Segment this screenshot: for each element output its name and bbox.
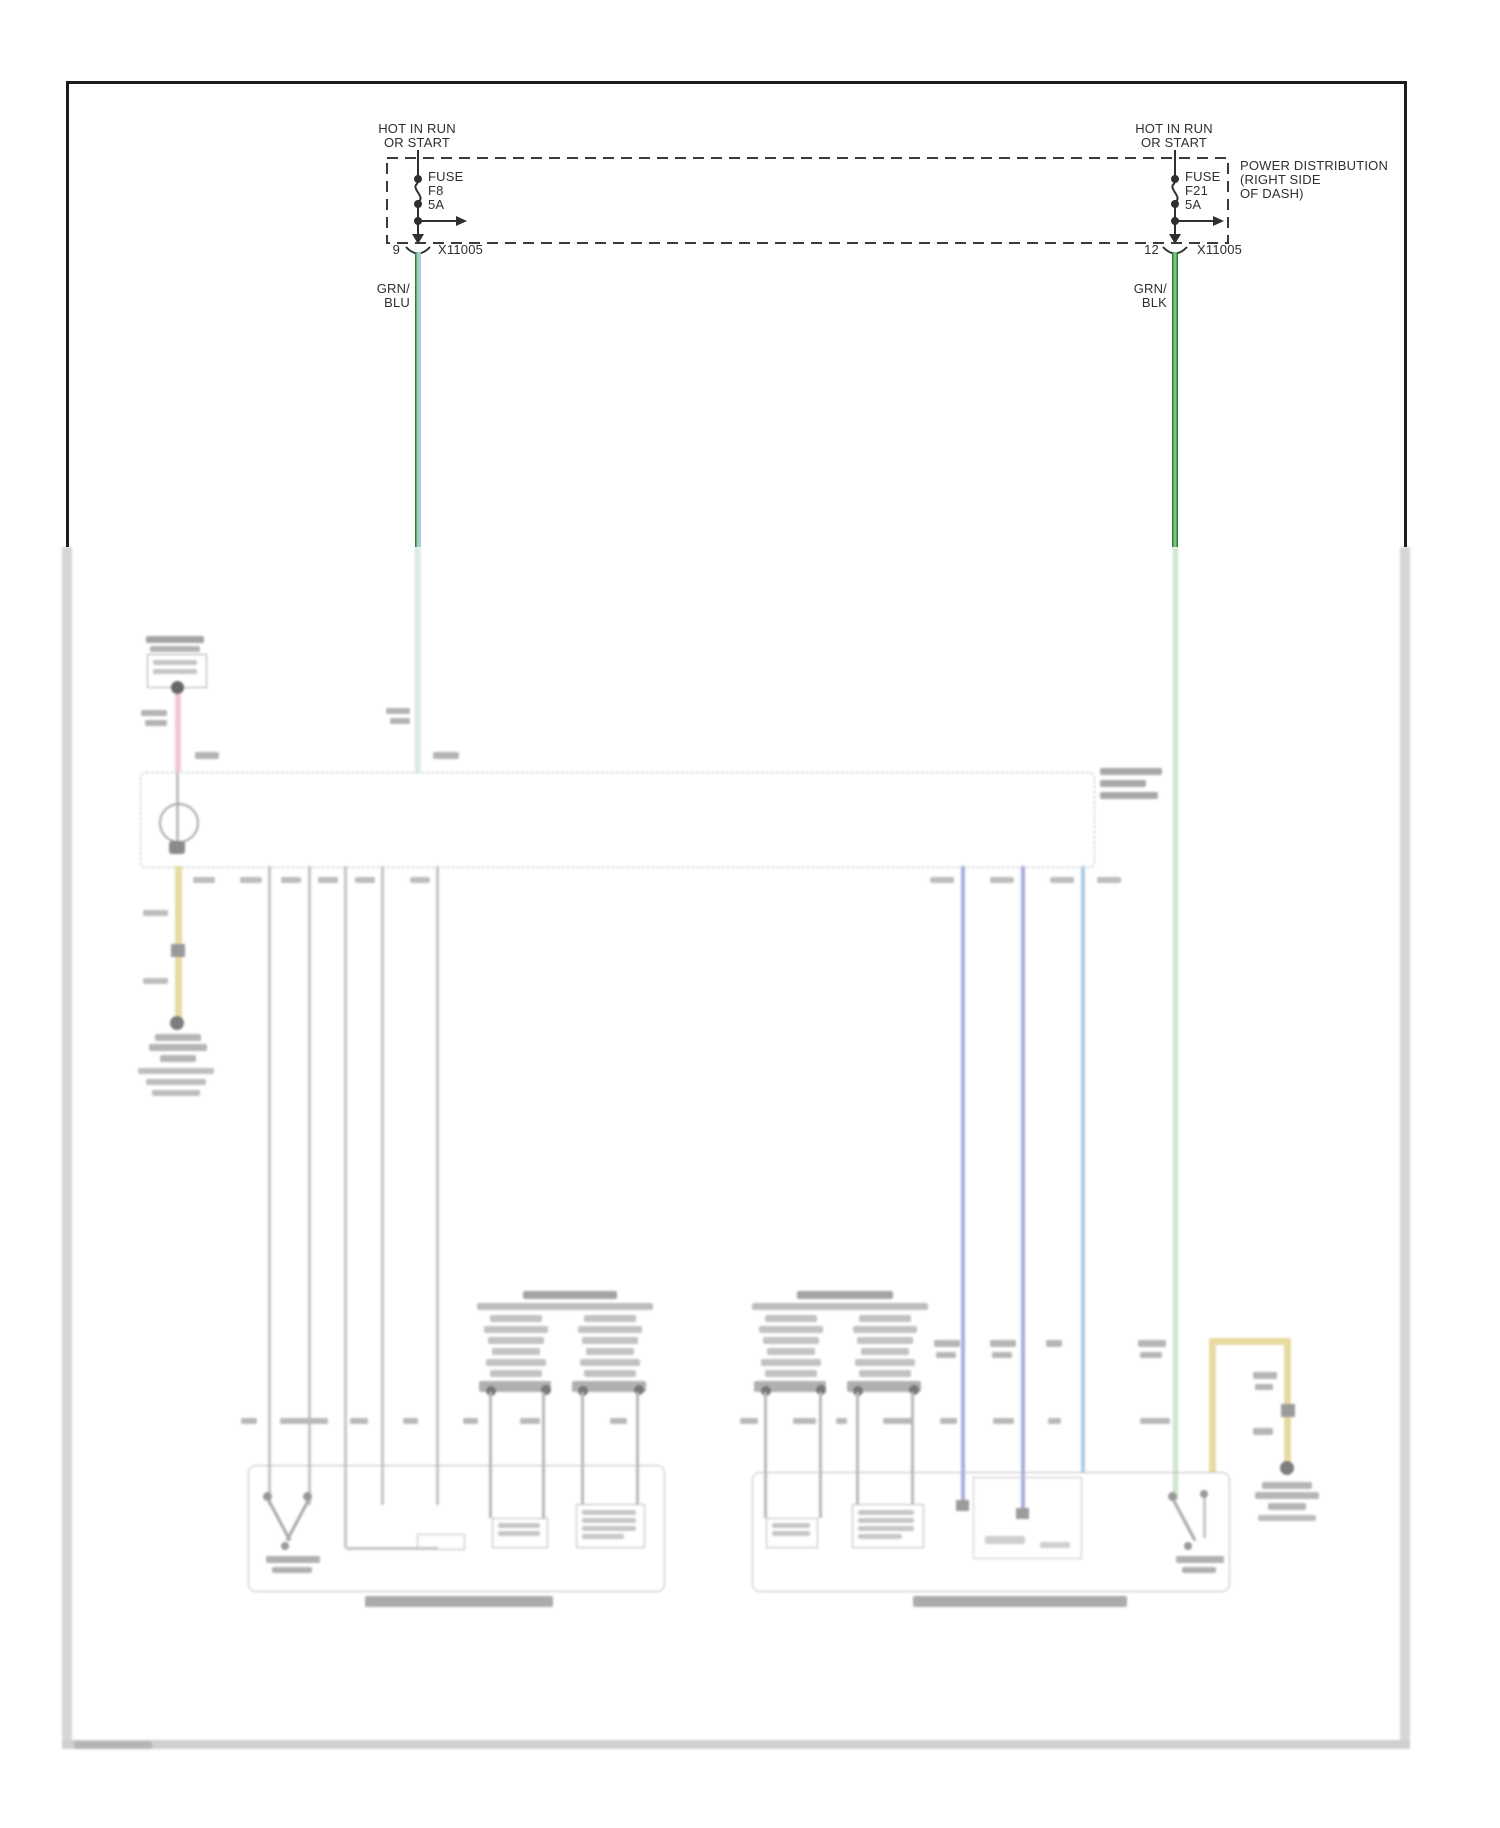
faded-label xyxy=(488,1337,544,1344)
faded-label xyxy=(586,1348,634,1355)
fuse-f8-label: FUSE xyxy=(428,170,463,184)
faded-label xyxy=(195,752,219,759)
faded-footer-label xyxy=(74,1741,152,1749)
fuse-f8-id: F8 xyxy=(428,184,444,198)
connector-x11005-left: X11005 xyxy=(438,243,483,257)
faded-label xyxy=(153,669,197,674)
faded-ground-symbol xyxy=(1262,1482,1312,1489)
power-distribution-caption-line3: OF DASH) xyxy=(1240,187,1304,201)
faded-label xyxy=(990,1340,1016,1347)
faded-label xyxy=(1100,792,1158,799)
faded-label xyxy=(138,1068,214,1074)
faded-label xyxy=(490,1315,542,1322)
faded-wire xyxy=(1203,1498,1206,1538)
faded-label xyxy=(463,1418,478,1424)
faded-link-line xyxy=(346,1547,438,1550)
faded-label xyxy=(853,1326,917,1333)
faded-wire-blue xyxy=(1081,866,1085,1472)
faded-border-left xyxy=(62,547,72,1748)
faded-switch-terminal xyxy=(1184,1542,1192,1550)
faded-label xyxy=(486,1359,546,1366)
faded-label xyxy=(150,646,200,652)
faded-label xyxy=(584,1370,636,1377)
fuse-f21-id: F21 xyxy=(1185,184,1208,198)
faded-label xyxy=(859,1315,911,1322)
wire-color-right-line2: BLK xyxy=(1107,296,1167,310)
wire-grn-blk xyxy=(1172,252,1178,547)
connector-pin-9: 9 xyxy=(374,243,400,257)
faded-label xyxy=(1046,1340,1062,1347)
faded-label xyxy=(883,1418,913,1424)
faded-wire xyxy=(344,866,347,1548)
connector-pin-12: 12 xyxy=(1125,243,1159,257)
faded-label xyxy=(350,1418,368,1424)
faded-label xyxy=(582,1534,624,1539)
faded-wire-pink xyxy=(175,694,181,772)
faded-label xyxy=(763,1337,819,1344)
faded-label xyxy=(578,1326,642,1333)
faded-label xyxy=(930,877,954,883)
faded-label xyxy=(992,1352,1012,1358)
faded-label xyxy=(266,1556,320,1563)
power-distribution-caption-line2: (RIGHT SIDE xyxy=(1240,173,1321,187)
faded-label xyxy=(143,910,168,916)
faded-label xyxy=(767,1348,815,1355)
faded-label xyxy=(740,1418,758,1424)
faded-wire xyxy=(268,866,271,1505)
faded-label xyxy=(498,1523,540,1528)
faded-wire xyxy=(381,866,384,1505)
hot-label-right-line1: HOT IN RUN xyxy=(1109,122,1239,136)
connector-x11005-right: X11005 xyxy=(1197,243,1242,257)
faded-label xyxy=(1176,1556,1224,1563)
faded-diagram-region xyxy=(0,0,1500,1828)
faded-label xyxy=(240,877,262,883)
faded-label xyxy=(272,1567,312,1573)
faded-label xyxy=(280,1418,328,1424)
wire-color-right-line1: GRN/ xyxy=(1107,282,1167,296)
fuse-f21-rating: 5A xyxy=(1185,198,1201,212)
faded-label xyxy=(193,877,215,883)
faded-component-shelf xyxy=(477,1303,653,1310)
faded-wire-grn-blu xyxy=(415,547,421,773)
faded-label xyxy=(490,1370,542,1377)
fuse-f21-label: FUSE xyxy=(1185,170,1220,184)
faded-label xyxy=(143,978,168,984)
faded-label xyxy=(580,1359,640,1366)
faded-label xyxy=(1258,1515,1316,1521)
wire-color-left-line1: GRN/ xyxy=(350,282,410,296)
fuse-f8-rating: 5A xyxy=(428,198,444,212)
faded-label xyxy=(355,877,375,883)
faded-wire-blue xyxy=(1021,866,1025,1514)
faded-label xyxy=(836,1418,847,1424)
faded-label xyxy=(520,1418,540,1424)
faded-wire-grn-blk xyxy=(1173,547,1178,1500)
faded-ground-symbol xyxy=(149,1044,207,1051)
faded-label xyxy=(990,877,1014,883)
faded-switch-terminal xyxy=(1200,1490,1208,1498)
faded-label xyxy=(318,877,338,883)
faded-component-header xyxy=(523,1291,617,1299)
faded-label xyxy=(1253,1372,1277,1379)
faded-label xyxy=(940,1418,957,1424)
faded-border-right xyxy=(1400,547,1410,1748)
faded-module-label xyxy=(913,1596,1127,1607)
faded-label xyxy=(1040,1542,1070,1548)
faded-label xyxy=(1138,1340,1166,1347)
outer-border-left xyxy=(66,81,69,547)
faded-label xyxy=(386,708,410,714)
wire-grn-blu xyxy=(415,252,421,547)
hot-label-left-line1: HOT IN RUN xyxy=(352,122,482,136)
faded-label xyxy=(153,660,197,665)
faded-label xyxy=(145,720,167,726)
faded-label xyxy=(858,1510,914,1515)
faded-label xyxy=(1100,780,1146,787)
hot-label-left-line2: OR START xyxy=(352,136,482,150)
faded-label xyxy=(858,1518,914,1523)
faded-border-bottom xyxy=(62,1740,1410,1749)
faded-label xyxy=(1140,1352,1162,1358)
faded-label xyxy=(934,1340,960,1347)
faded-wire-yellow xyxy=(1209,1338,1216,1472)
faded-label xyxy=(936,1352,956,1358)
faded-label xyxy=(858,1526,914,1531)
faded-label xyxy=(610,1418,627,1424)
hot-label-right-line2: OR START xyxy=(1109,136,1239,150)
faded-label xyxy=(584,1315,636,1322)
faded-label xyxy=(1253,1428,1273,1435)
faded-label xyxy=(484,1326,548,1333)
faded-inline-connector xyxy=(1281,1404,1295,1417)
faded-wire-yellow xyxy=(1284,1338,1291,1465)
faded-wire xyxy=(308,866,311,1505)
faded-label xyxy=(855,1359,915,1366)
faded-label xyxy=(765,1370,817,1377)
faded-junction-dot xyxy=(1280,1461,1294,1475)
faded-label xyxy=(858,1534,902,1539)
outer-border-right xyxy=(1404,81,1407,547)
faded-label xyxy=(759,1326,823,1333)
faded-label xyxy=(772,1523,810,1528)
faded-label xyxy=(241,1418,257,1424)
faded-label xyxy=(492,1348,540,1355)
faded-label xyxy=(433,752,459,759)
outer-border-top xyxy=(66,81,1407,84)
faded-switch-terminal xyxy=(281,1542,289,1550)
faded-label xyxy=(582,1337,638,1344)
faded-label xyxy=(281,877,301,883)
faded-wire-yellow xyxy=(1209,1338,1291,1345)
faded-label xyxy=(410,877,430,883)
faded-label xyxy=(1050,877,1074,883)
faded-ground-symbol xyxy=(1268,1503,1306,1510)
faded-label xyxy=(859,1370,911,1377)
faded-label xyxy=(1182,1567,1216,1573)
faded-wire-blue xyxy=(961,866,965,1506)
faded-label xyxy=(146,1079,206,1085)
faded-label xyxy=(146,636,204,643)
faded-label xyxy=(152,1090,200,1096)
faded-lamp-circle xyxy=(159,803,199,843)
faded-ground-symbol xyxy=(1255,1492,1319,1499)
faded-inline-connector xyxy=(171,944,185,957)
faded-ground-symbol xyxy=(155,1034,201,1041)
wiring-diagram-page: HOT IN RUN OR START FUSE F8 5A 9 X11005 … xyxy=(0,0,1500,1828)
faded-label xyxy=(793,1418,816,1424)
faded-label xyxy=(1048,1418,1061,1424)
wire-color-left-line2: BLU xyxy=(350,296,410,310)
faded-label xyxy=(765,1315,817,1322)
faded-module-label xyxy=(365,1596,553,1607)
faded-label xyxy=(582,1518,636,1523)
faded-label xyxy=(1255,1384,1273,1390)
faded-label xyxy=(985,1536,1025,1544)
faded-label xyxy=(141,710,167,716)
faded-label xyxy=(498,1531,540,1536)
faded-wire xyxy=(436,866,439,1505)
faded-connector-blob xyxy=(169,841,185,854)
faded-component-shelf xyxy=(752,1303,928,1310)
faded-label xyxy=(761,1359,821,1366)
faded-label xyxy=(1097,877,1121,883)
faded-module-box-1 xyxy=(140,772,1095,868)
faded-label xyxy=(390,718,410,724)
faded-label xyxy=(861,1348,909,1355)
faded-ground-symbol xyxy=(160,1055,196,1062)
faded-label xyxy=(993,1418,1014,1424)
faded-label xyxy=(1140,1418,1170,1424)
faded-label xyxy=(772,1531,810,1536)
faded-label xyxy=(582,1526,636,1531)
faded-component-header xyxy=(797,1291,893,1299)
faded-label xyxy=(403,1418,418,1424)
faded-label xyxy=(857,1337,913,1344)
power-distribution-caption-line1: POWER DISTRIBUTION xyxy=(1240,159,1388,173)
faded-junction-dot xyxy=(171,681,184,694)
faded-junction-dot xyxy=(170,1016,184,1030)
faded-label xyxy=(1100,768,1162,775)
faded-label xyxy=(582,1510,636,1515)
